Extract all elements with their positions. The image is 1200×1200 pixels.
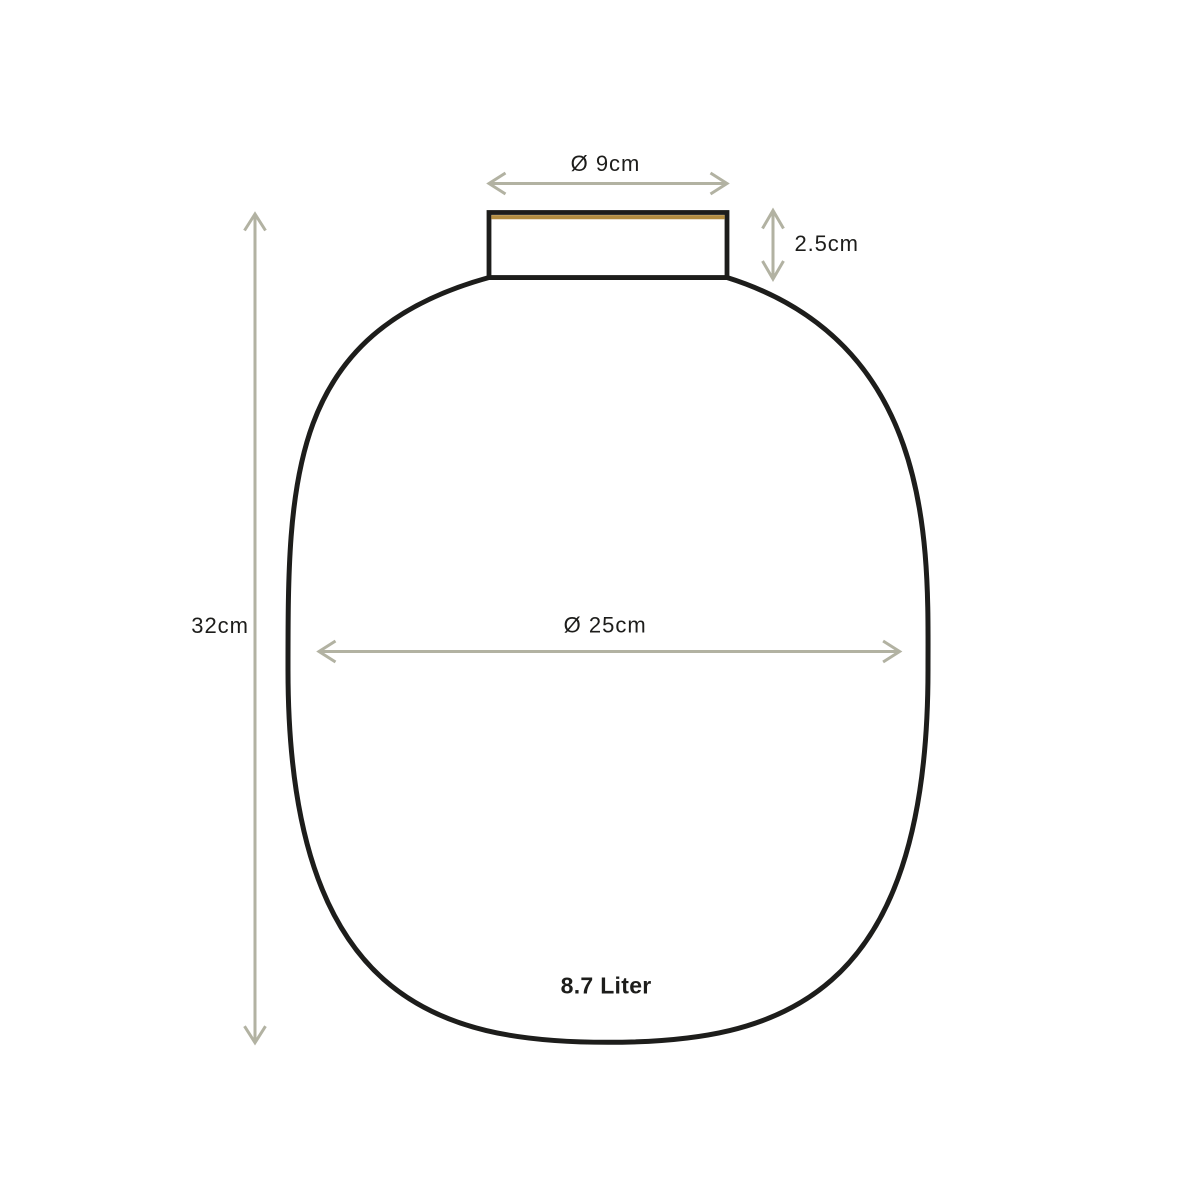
svg-text:32cm: 32cm [191,613,249,638]
svg-text:Ø 9cm: Ø 9cm [571,151,641,176]
svg-text:Ø 25cm: Ø 25cm [564,613,647,638]
svg-text:8.7 Liter: 8.7 Liter [561,973,652,999]
svg-text:2.5cm: 2.5cm [795,231,859,256]
